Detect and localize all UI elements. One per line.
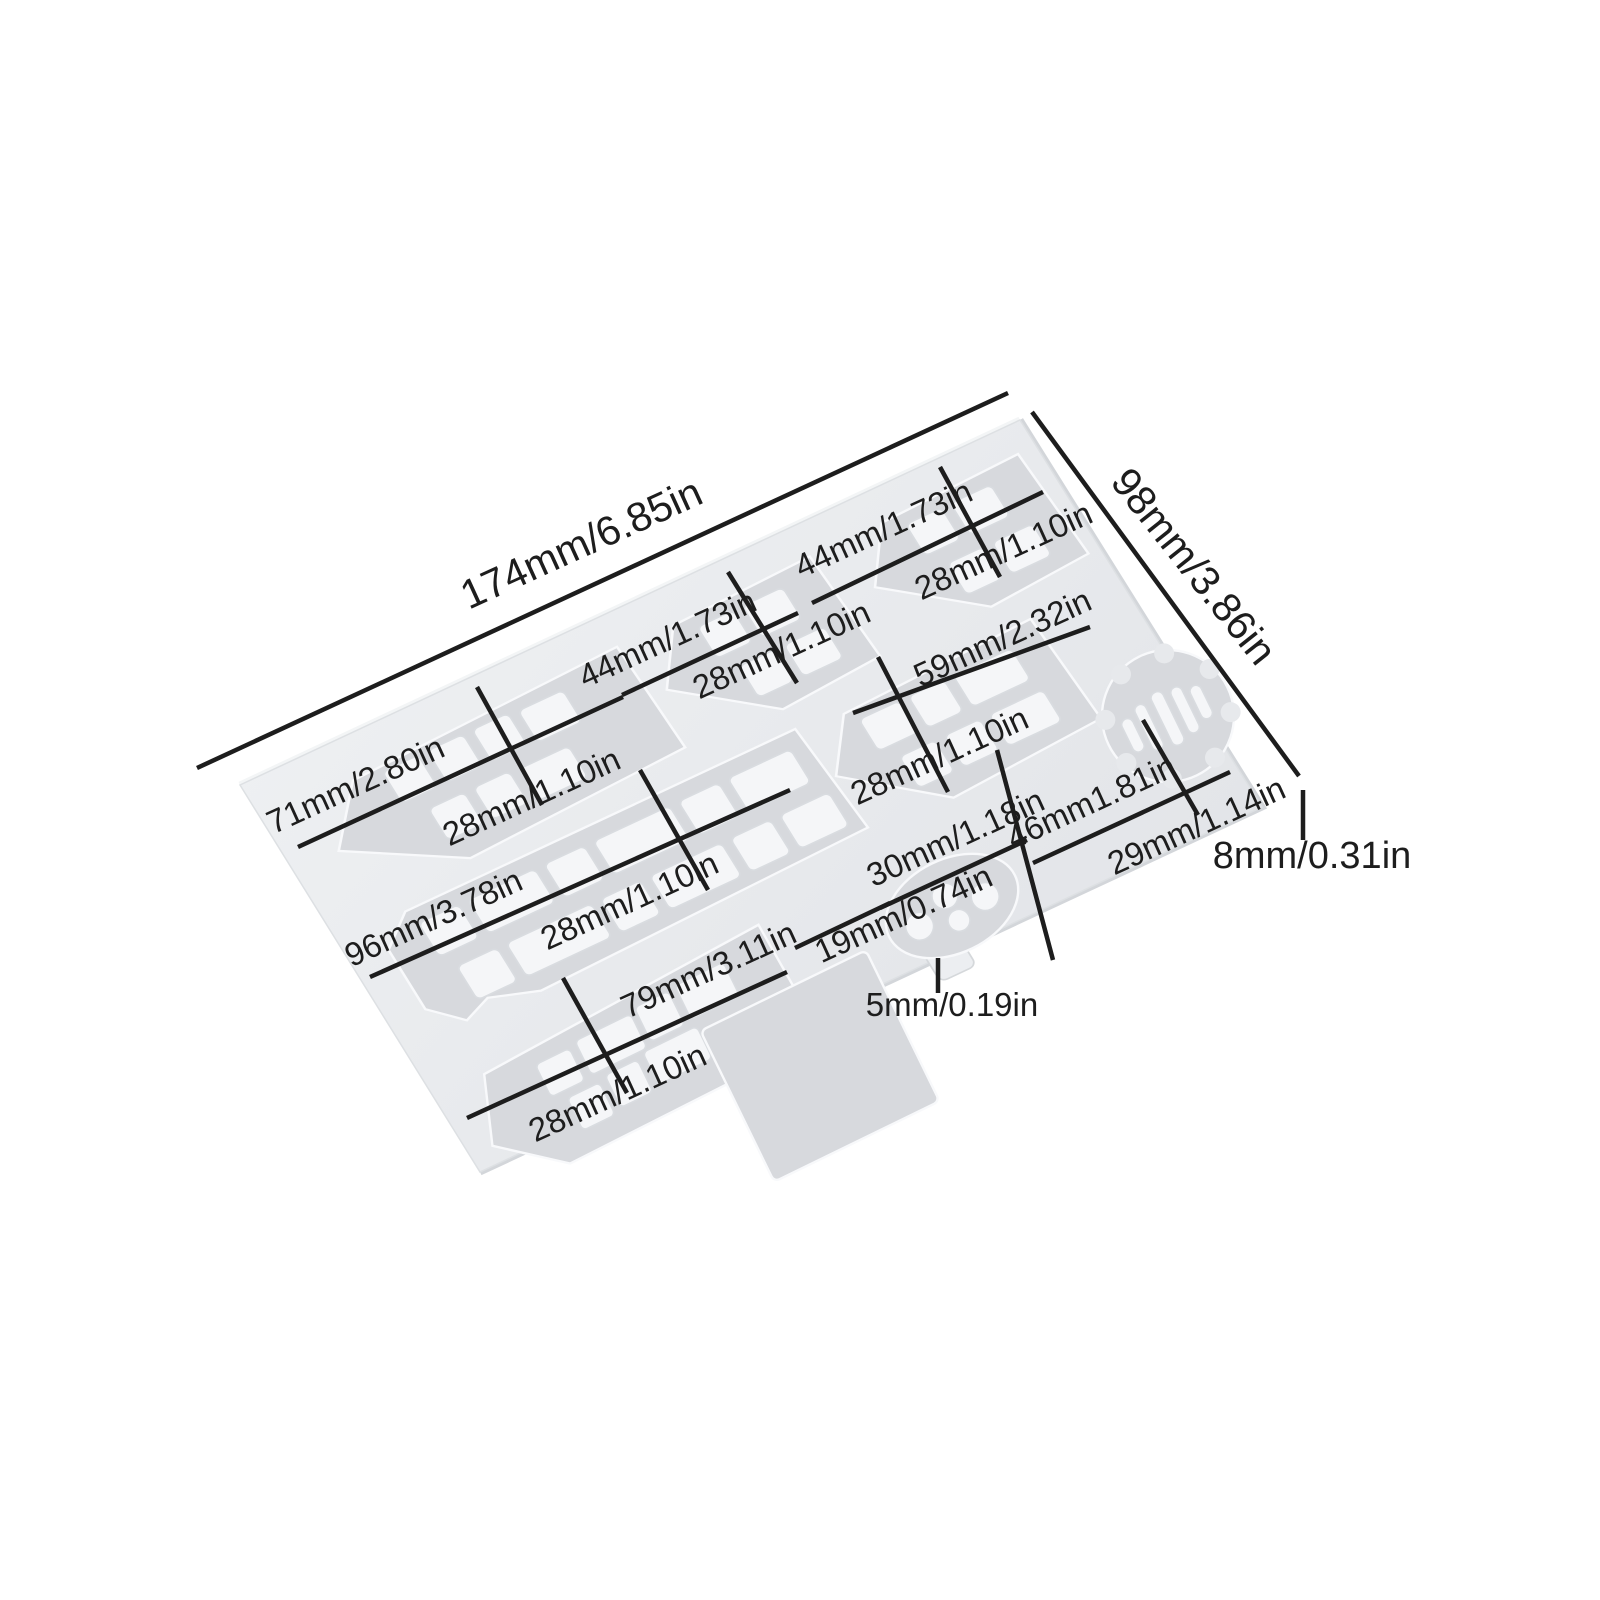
diagram-svg: 174mm/6.85in 98mm/3.86in 8mm/0.31in 71mm… bbox=[0, 0, 1600, 1600]
dim-label-tab-size: 5mm/0.19in bbox=[866, 986, 1038, 1023]
product-dimension-diagram: 174mm/6.85in 98mm/3.86in 8mm/0.31in 71mm… bbox=[0, 0, 1600, 1600]
dim-label-thickness: 8mm/0.31in bbox=[1213, 835, 1412, 877]
